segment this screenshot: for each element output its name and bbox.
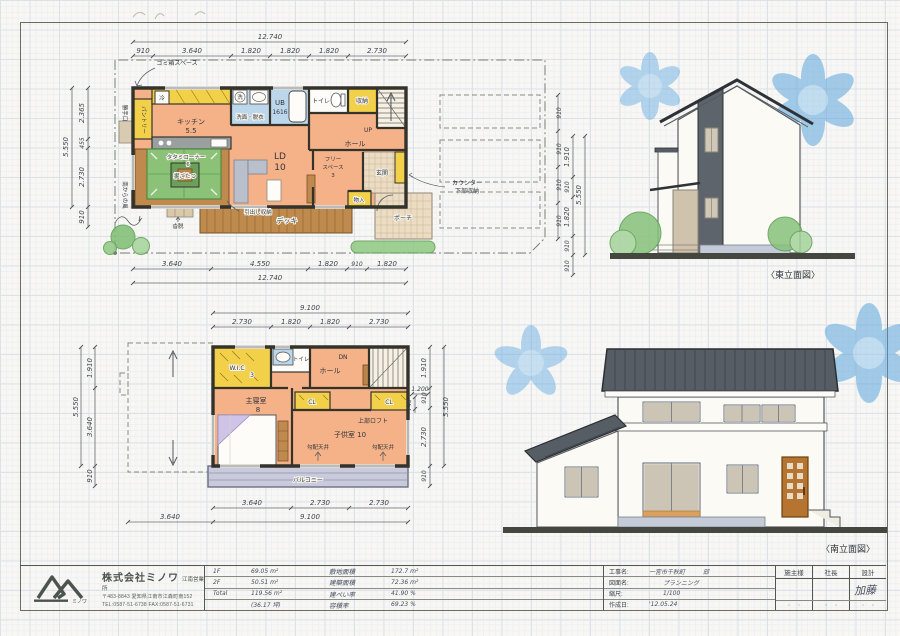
- loft-label: 上部ロフト: [358, 417, 388, 425]
- freespace-label-1: フリー: [325, 156, 342, 163]
- dim-total: 5.550: [442, 396, 450, 417]
- approval-boxes: 加藤: [776, 579, 886, 600]
- dim: 2.730: [310, 499, 331, 507]
- area-row: 1F 69.05 m² 敷地面積 172.7 m²: [205, 566, 603, 577]
- title-block: ミノワ 株式会社ミノワ江南営業所 〒483-8843 愛知県江南市江森町南152…: [20, 565, 886, 610]
- area-row: 2F 50.51 m² 建築面積 72.36 m²: [205, 577, 603, 588]
- toilet-label: トイレ: [293, 357, 310, 363]
- dim: 1.910: [563, 146, 571, 167]
- east-elevation-caption: 〈東立面図〉: [766, 269, 820, 281]
- dim-total: 5.550: [575, 184, 583, 205]
- project-label: 図面名:: [604, 578, 649, 587]
- drawing-sheet: 910 3.640 1.820 1.820 1.820 2.730 12.740…: [0, 0, 900, 636]
- dim-total: 9.100: [300, 513, 321, 521]
- dim: 3.640: [242, 499, 263, 507]
- kitchen-label: キッチン: [177, 118, 205, 126]
- dim: 3.640: [162, 260, 183, 268]
- dim: 1.910: [420, 357, 428, 378]
- approval-header-president: 社長: [813, 566, 850, 578]
- counter-note-1: カウンター: [452, 179, 482, 187]
- area-value: 119.56 m²: [251, 590, 329, 597]
- tatami-size: 6: [186, 162, 190, 168]
- area-label: 2F: [205, 579, 251, 586]
- house-south: [525, 349, 840, 527]
- approval-headers: 施主様 社長 設計: [776, 566, 886, 579]
- dim: 910: [564, 181, 571, 193]
- dim: 910: [421, 470, 428, 482]
- slope-ceiling-left: 勾配天井: [307, 443, 330, 451]
- company-tel: TEL:0587-51-6738 FAX:0587-51-6731: [102, 602, 204, 608]
- floor-plan-1f: 910 3.640 1.820 1.820 1.820 2.730 12.740…: [15, 25, 575, 295]
- project-row: 作成日: '12.05.24: [604, 600, 775, 610]
- area-value: (36.17 坪): [251, 600, 329, 609]
- dim: 1.820: [320, 318, 341, 326]
- washroom-label: 洗面・脱衣: [236, 113, 264, 121]
- slope-ceiling-right: 勾配天井: [372, 443, 395, 451]
- metric-value: 41.90 %: [391, 590, 416, 597]
- project-label: 縮尺:: [604, 589, 649, 598]
- metric-value: 72.36 m²: [391, 579, 418, 586]
- approval-box-owner: [776, 579, 813, 600]
- logo-caption: ミノワ: [72, 599, 87, 605]
- dim: 1.820: [563, 206, 571, 227]
- dim: 910: [136, 47, 150, 55]
- minowa-logo: ミノワ: [32, 572, 96, 604]
- approval-date-dots: ・ ・: [850, 601, 886, 610]
- tatami-label: タタミコーナー: [167, 153, 206, 161]
- ground-line-east: [610, 253, 855, 259]
- mono-label: 物入: [353, 196, 365, 204]
- dim: 910: [564, 240, 571, 252]
- company-info: 株式会社ミノワ江南営業所 〒483-8843 愛知県江南市江森町南152 TEL…: [102, 569, 204, 608]
- footprint-below: [120, 343, 213, 472]
- toilet-label: トイレ: [312, 98, 330, 105]
- project-value: '12.05.24: [649, 601, 677, 608]
- freespace-size: 3: [331, 173, 335, 179]
- approval-date-dots: ・ ・: [813, 601, 850, 610]
- washer-label: 洗: [237, 93, 243, 101]
- metric-value: 172.7 m²: [391, 568, 418, 575]
- dim-total: 9.100: [300, 304, 321, 312]
- dim: 2.730: [369, 499, 390, 507]
- project-label: 工事名:: [604, 567, 649, 576]
- ld-label: LD: [274, 152, 286, 162]
- project-info: 工事名: 一宮市千秋町 邸 図面名: プランニング 縮尺: 1/100 作成日:…: [603, 566, 775, 610]
- dim: 1.820: [280, 47, 301, 55]
- dim: 1.820: [241, 47, 262, 55]
- wic-size: 3: [250, 372, 254, 379]
- area-table: 1F 69.05 m² 敷地面積 172.7 m² 2F 50.51 m² 建築…: [205, 566, 603, 610]
- dim-total: 5.550: [62, 136, 70, 157]
- genkan-label: 玄関: [376, 169, 388, 177]
- designer-signature: 加藤: [854, 581, 877, 598]
- metric-label: 建ペい率: [329, 589, 391, 599]
- dim: 3.640: [182, 47, 203, 55]
- closet-right-label: CL: [385, 399, 393, 406]
- bath-size: 1616: [272, 109, 287, 116]
- backdoor-label: 勝手口: [121, 105, 129, 122]
- balcony-label: バルコニー: [293, 477, 323, 484]
- kitchen-size: 5.5: [185, 127, 196, 135]
- dim: 1.820: [318, 260, 339, 268]
- dim-total: 5.550: [72, 396, 80, 417]
- master-size: 8: [256, 406, 260, 414]
- dim: 910: [86, 469, 94, 483]
- approval-header-design: 設計: [850, 566, 886, 578]
- area-value: 69.05 m²: [251, 568, 329, 575]
- approval-header-owner: 施主様: [776, 566, 813, 578]
- project-value: プランニング: [663, 578, 699, 587]
- dim: 1.820: [377, 260, 398, 268]
- metric-label: 容積率: [329, 600, 391, 610]
- project-row: 縮尺: 1/100: [604, 589, 775, 600]
- wic-label: W.I.C: [229, 365, 244, 372]
- metric-label: 建築面積: [329, 577, 391, 587]
- dim: 910: [421, 392, 428, 404]
- freespace-label-2: スペース: [322, 164, 343, 171]
- company-name: 株式会社ミノワ: [102, 573, 179, 584]
- elevation-south: 〈南立面図〉: [495, 305, 900, 570]
- dim: 3.640: [86, 416, 94, 437]
- up-label: UP: [364, 127, 372, 134]
- area-label: 1F: [205, 568, 251, 575]
- floor-plan-2f: 2.730 1.820 1.820 2.730 9.100 3.640 2.73…: [60, 295, 500, 570]
- project-value: 一宮市千秋町 邸: [649, 567, 709, 576]
- dimensions-east: 1.910 910 1.820 910 910 5.550: [563, 134, 587, 277]
- area-row: Total 119.56 m² 建ペい率 41.90 %: [205, 589, 603, 600]
- hall-label: ホール: [320, 367, 341, 375]
- company-cell: ミノワ 株式会社ミノワ江南営業所 〒483-8843 愛知県江南市江森町南152…: [20, 566, 205, 610]
- closet-left-label: CL: [308, 399, 316, 406]
- dim: 3.640: [160, 513, 181, 521]
- dim-total: 12.740: [258, 274, 283, 282]
- pantry-label: パントリー: [140, 106, 147, 134]
- project-value: 1/100: [663, 590, 680, 597]
- metric-value: 69.23 %: [391, 601, 416, 608]
- master-label: 主寝室: [246, 396, 267, 405]
- fridge-label: 冷: [159, 94, 165, 102]
- ground-line-south: [503, 527, 887, 533]
- approval-date-dots: ・ ・: [776, 601, 813, 610]
- dim: 910: [351, 261, 363, 268]
- dim: 910: [78, 210, 86, 224]
- step-label: 沓脱: [172, 222, 184, 230]
- project-label: 作成日:: [604, 600, 649, 609]
- dim: 455: [79, 137, 86, 149]
- elevation-east: 1.910 910 1.820 910 910 5.550 〈東立面図〉: [555, 28, 895, 308]
- dim: 1.820: [281, 318, 302, 326]
- storage-label: 収納: [356, 97, 368, 105]
- bath-label: UB: [275, 99, 285, 107]
- counter-note-2: 下部収納: [455, 187, 479, 195]
- ld-size: 10: [274, 163, 286, 173]
- south-wind-note: 南からの風: [121, 181, 129, 209]
- dim: 2.730: [420, 426, 428, 447]
- kotatsu-label: 掘ごたつ: [174, 172, 196, 180]
- dim: 2.730: [78, 166, 86, 187]
- area-label: Total: [205, 590, 251, 597]
- dim: 2.730: [232, 318, 253, 326]
- approval-box-president: [813, 579, 850, 600]
- approval-block: 施主様 社長 設計 加藤 ・ ・ ・ ・ ・ ・: [775, 566, 886, 610]
- dim: 2.730: [369, 318, 390, 326]
- project-row: 図面名: プランニング: [604, 577, 775, 588]
- metric-label: 敷地面積: [329, 566, 391, 576]
- dim-total: 12.740: [258, 33, 283, 41]
- dn-label: DN: [338, 354, 347, 361]
- dim: 2.365: [78, 102, 86, 123]
- pencil-scribble: [125, 5, 235, 25]
- dim: 740: [406, 399, 413, 411]
- porch-label: ポーチ: [394, 214, 412, 222]
- dim: 1.820: [319, 47, 340, 55]
- area-row: (36.17 坪) 容積率 69.23 %: [205, 600, 603, 610]
- approval-dates: ・ ・ ・ ・ ・ ・: [776, 600, 886, 610]
- approval-box-design: 加藤: [850, 579, 886, 600]
- dim: 910: [564, 260, 571, 272]
- dim: 4.550: [250, 260, 271, 268]
- deck-label: デッキ: [277, 216, 298, 225]
- area-value: 50.51 m²: [251, 579, 329, 586]
- hall-label: ホール: [345, 140, 366, 148]
- drawer-note: 引出し収納: [244, 208, 272, 216]
- dim: 2.730: [367, 47, 388, 55]
- south-elevation-caption: 〈南立面図〉: [821, 543, 875, 555]
- project-row: 工事名: 一宮市千秋町 邸: [604, 566, 775, 577]
- trash-space-label: ゴミ箱スペース: [156, 59, 197, 67]
- dim: 1.910: [86, 357, 94, 378]
- company-address: 〒483-8843 愛知県江南市江森町南152: [102, 593, 204, 600]
- kids-room-label: 子供室 10: [334, 430, 366, 439]
- dim: 1.200: [411, 386, 428, 393]
